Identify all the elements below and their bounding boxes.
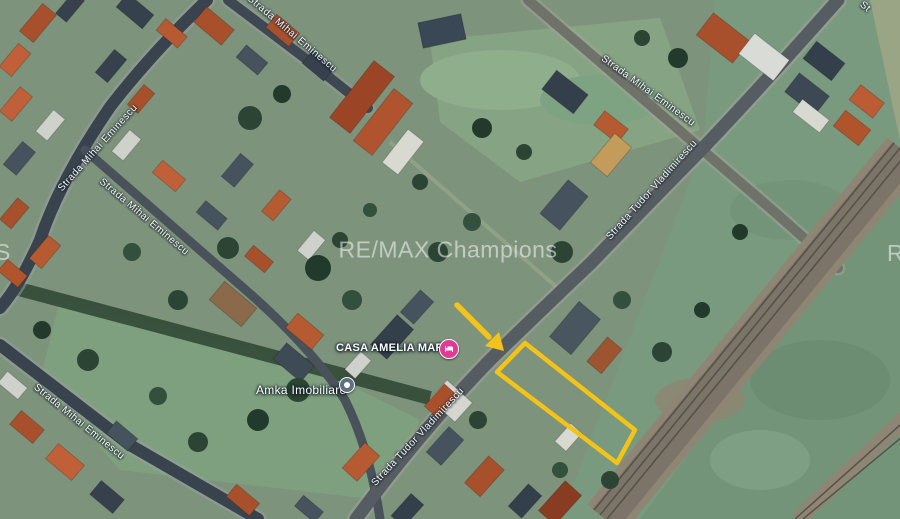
bed-icon: [443, 343, 455, 355]
satellite-imagery: [0, 0, 900, 519]
poi-dot-icon: [344, 382, 350, 388]
satellite-map-canvas[interactable]: Strada Mihai Eminescu Strada Mihai Emine…: [0, 0, 900, 519]
poi-label-amka-imobiliare[interactable]: Amka Imobiliare: [256, 383, 347, 397]
poi-label-casa-amelia-maria[interactable]: CASA AMELIA MARIA: [336, 342, 455, 354]
lodging-marker-icon[interactable]: [439, 339, 459, 359]
generic-poi-marker-icon[interactable]: [339, 377, 355, 393]
